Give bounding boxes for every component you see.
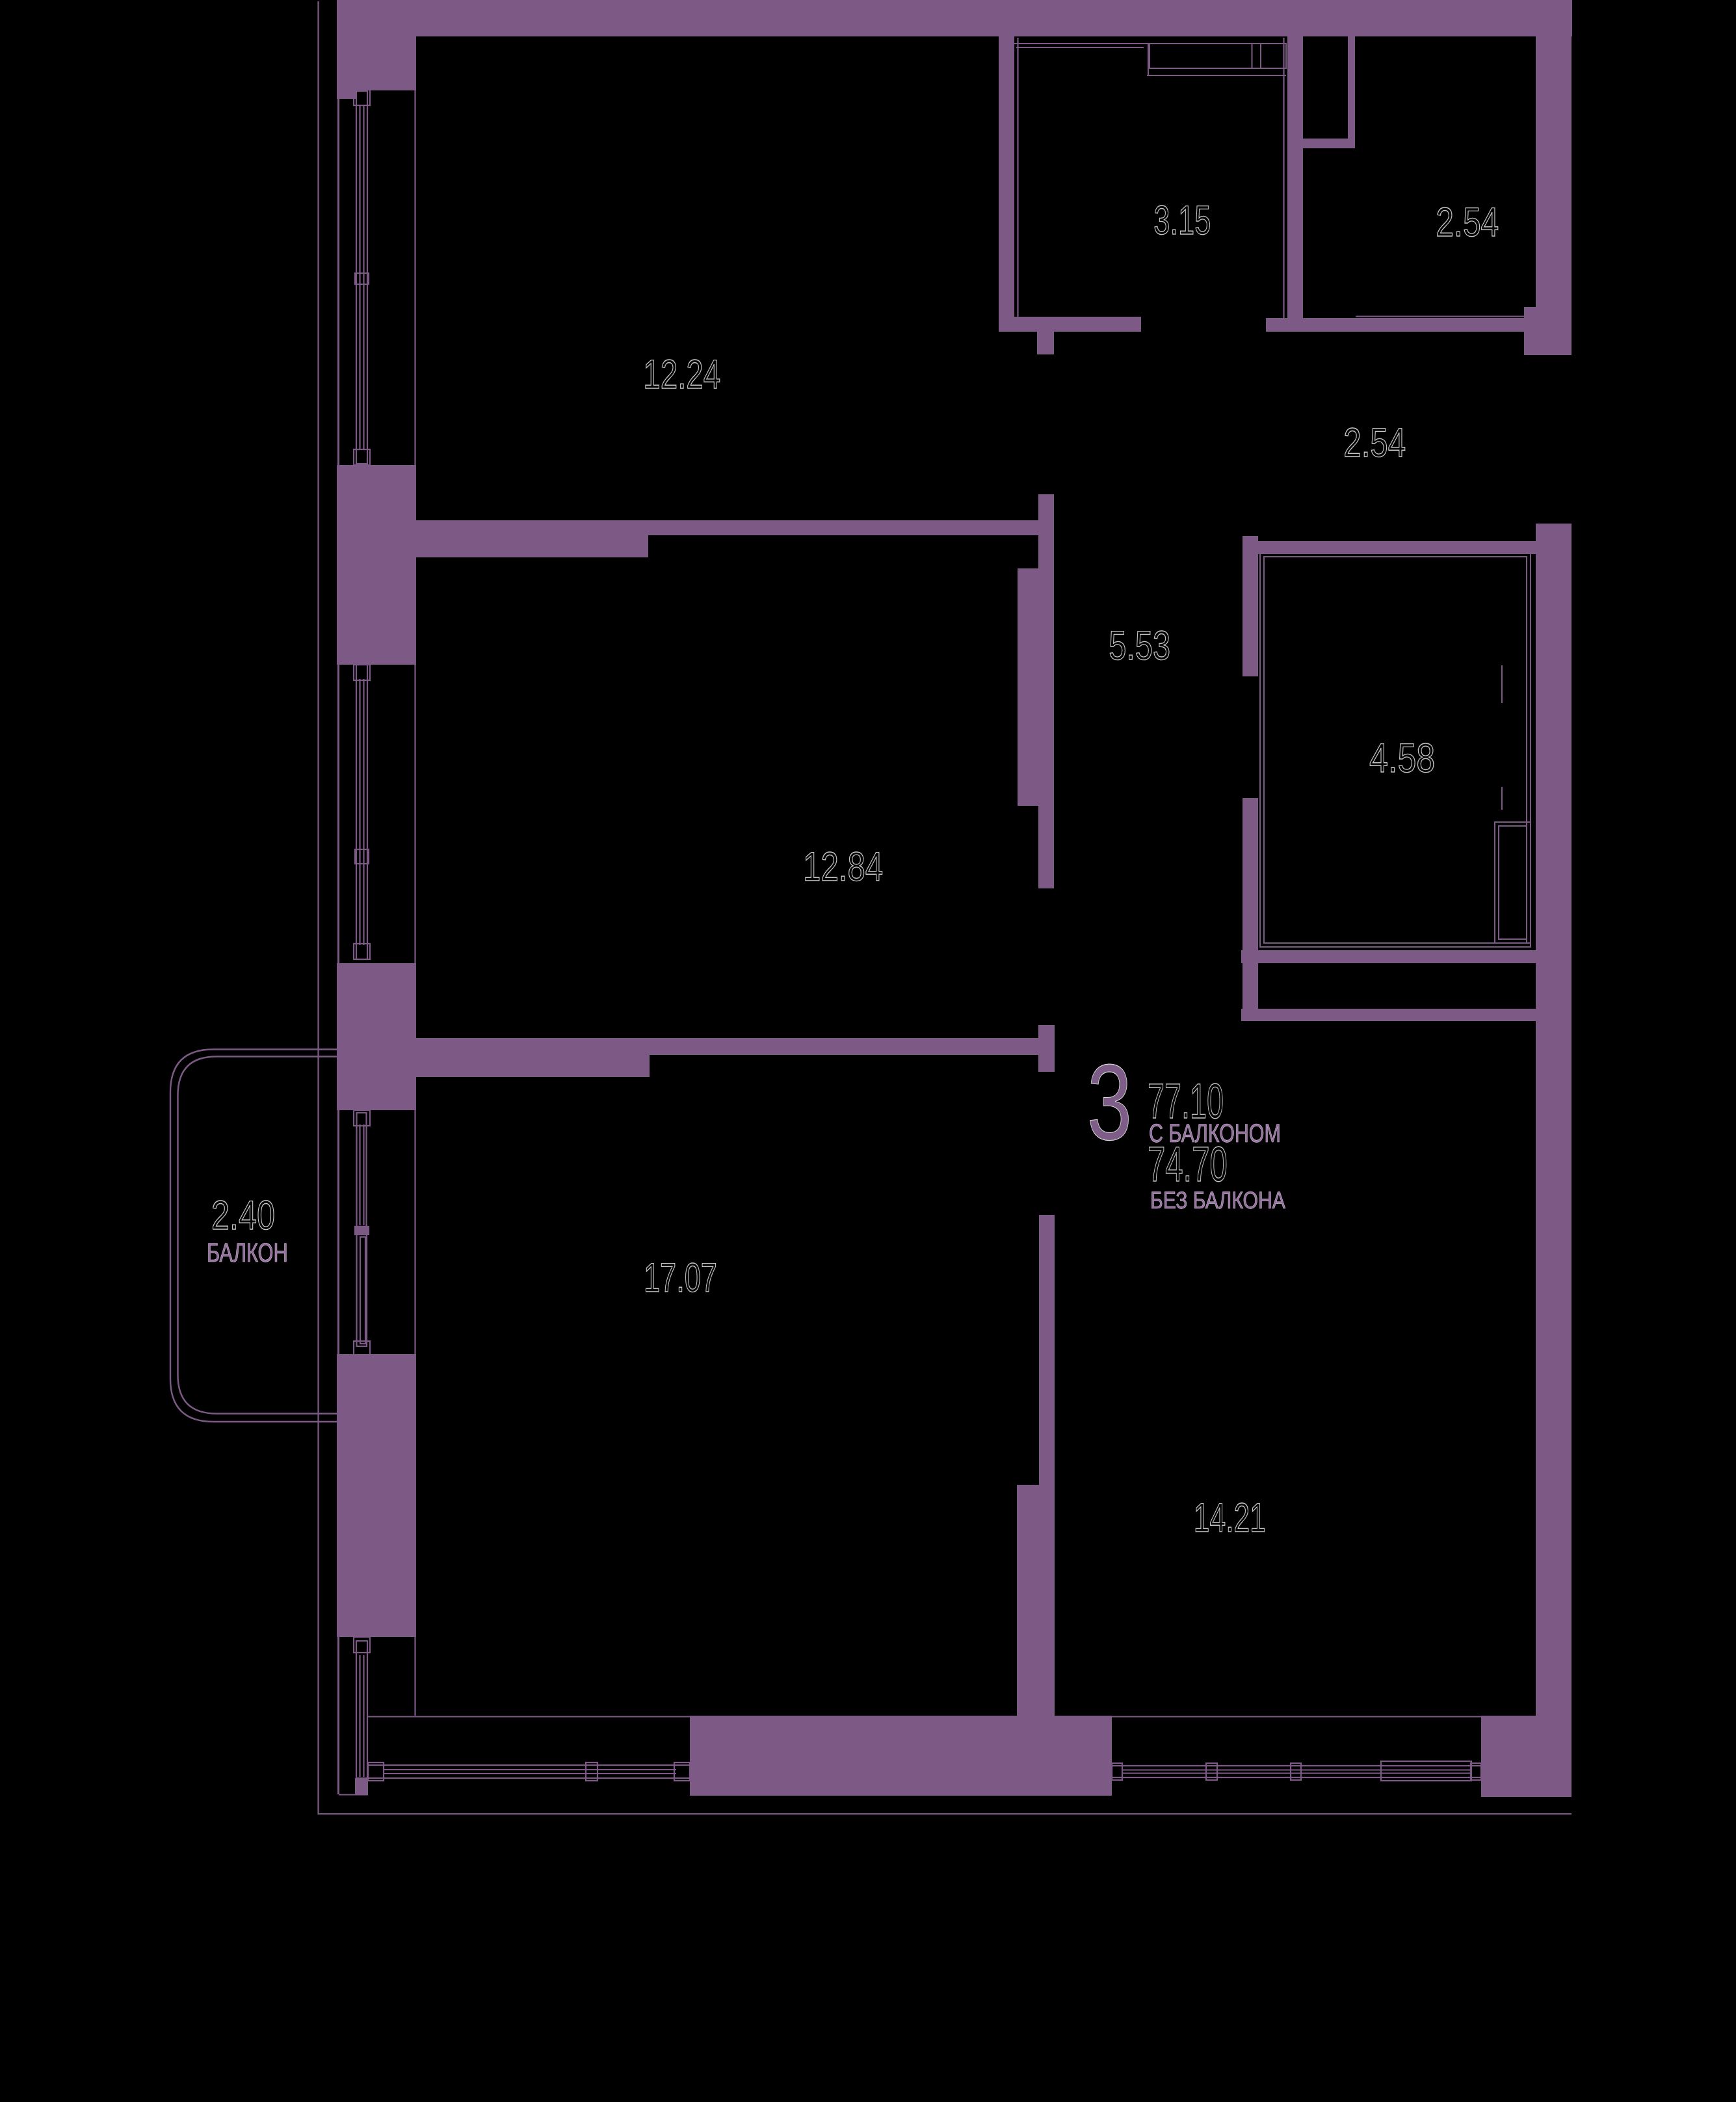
- svg-text:17.07: 17.07: [644, 1255, 717, 1301]
- svg-text:БЕЗ БАЛКОНА: БЕЗ БАЛКОНА: [1150, 1187, 1285, 1214]
- svg-text:2.40: 2.40: [211, 1193, 275, 1238]
- svg-text:4.58: 4.58: [1369, 736, 1435, 781]
- svg-text:12.84: 12.84: [803, 844, 883, 890]
- svg-text:14.21: 14.21: [1194, 1495, 1266, 1541]
- svg-text:12.24: 12.24: [643, 352, 720, 397]
- svg-text:2.54: 2.54: [1343, 420, 1406, 466]
- svg-text:С БАЛКОНОМ: С БАЛКОНОМ: [1149, 1119, 1281, 1148]
- svg-text:3.15: 3.15: [1153, 198, 1211, 243]
- svg-text:БАЛКОН: БАЛКОН: [207, 1238, 288, 1268]
- svg-text:5.53: 5.53: [1109, 623, 1170, 669]
- svg-text:3: 3: [1087, 1043, 1132, 1163]
- svg-text:2.54: 2.54: [1436, 200, 1499, 245]
